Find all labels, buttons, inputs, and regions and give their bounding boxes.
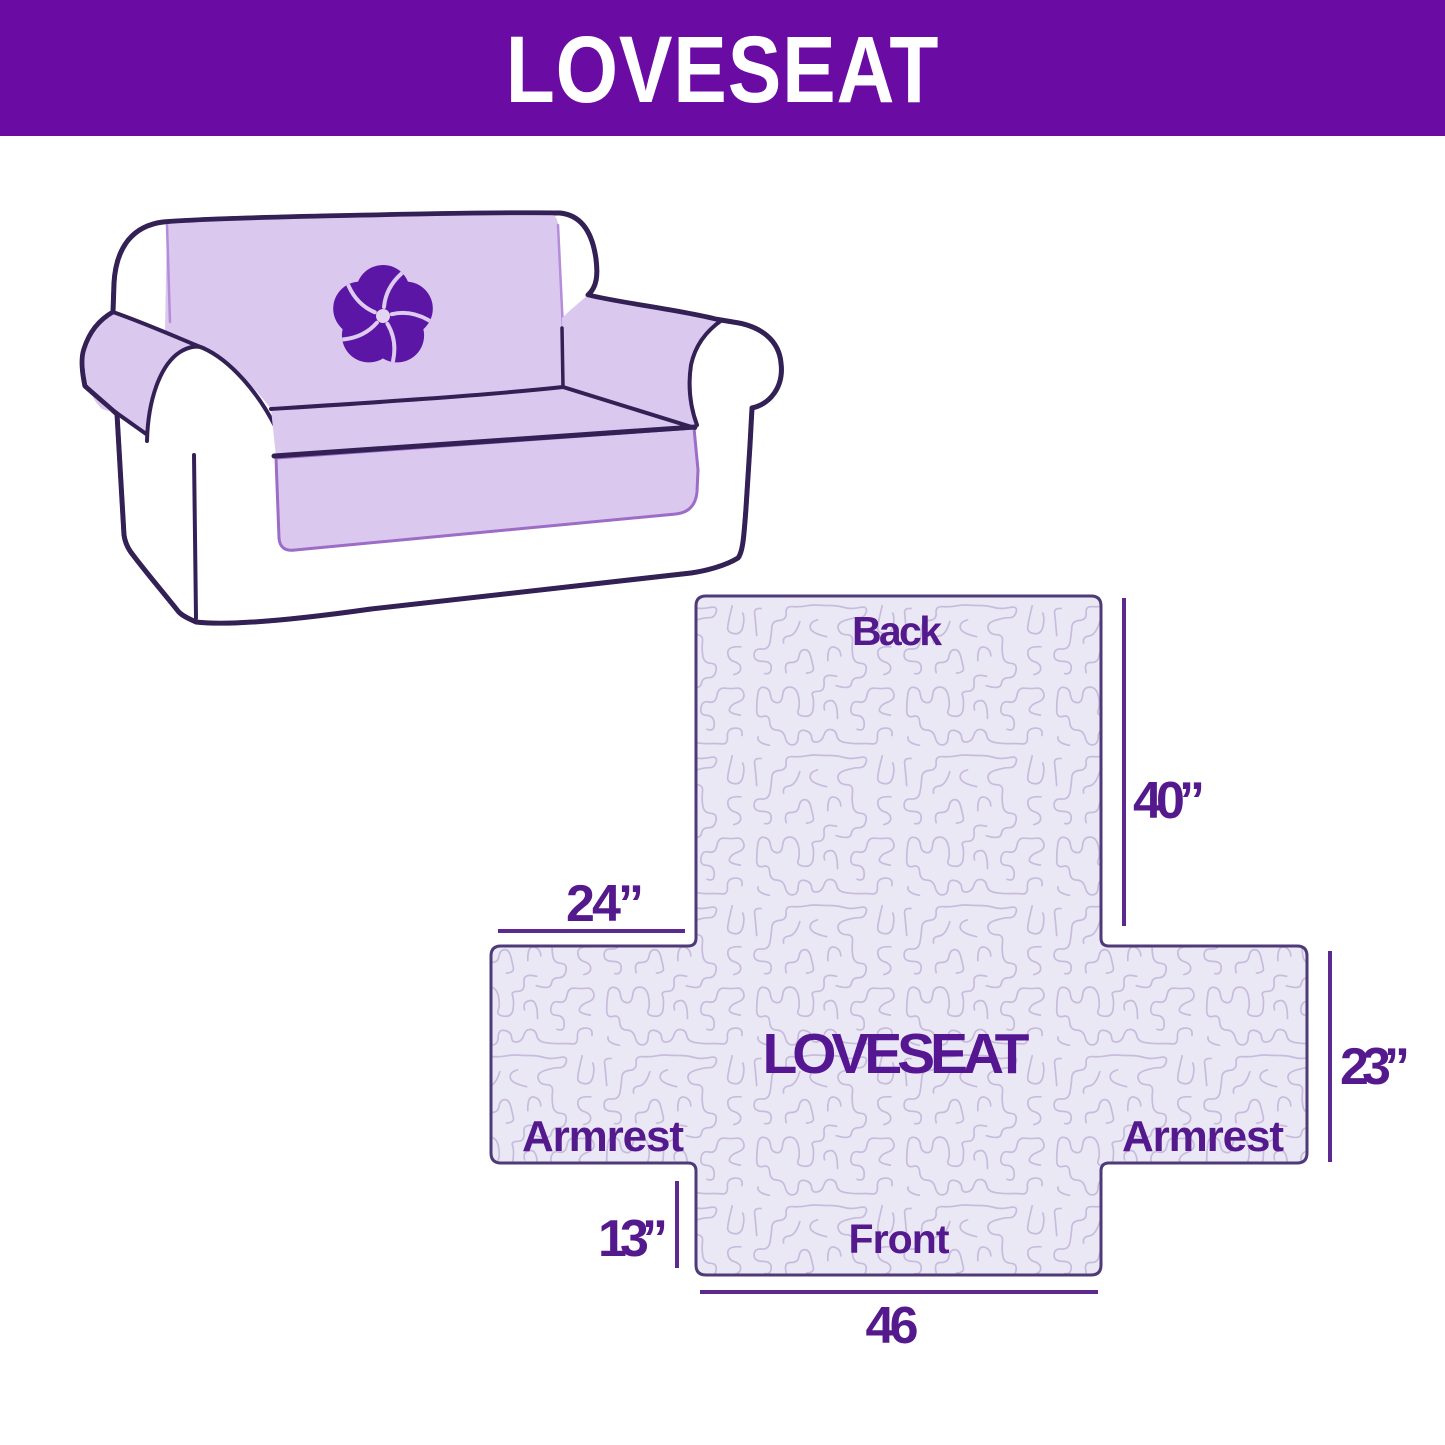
svg-text:Armrest: Armrest [1122, 1112, 1284, 1161]
svg-text:Armrest: Armrest [522, 1112, 684, 1161]
svg-text:Front: Front [849, 1216, 950, 1262]
svg-text:LOVESEAT: LOVESEAT [763, 1022, 1030, 1086]
svg-text:24”: 24” [566, 875, 644, 933]
svg-text:23”: 23” [1340, 1038, 1410, 1096]
svg-text:Back: Back [852, 608, 942, 654]
svg-text:46: 46 [866, 1297, 919, 1355]
svg-text:40”: 40” [1133, 772, 1205, 830]
svg-text:13”: 13” [598, 1210, 668, 1268]
